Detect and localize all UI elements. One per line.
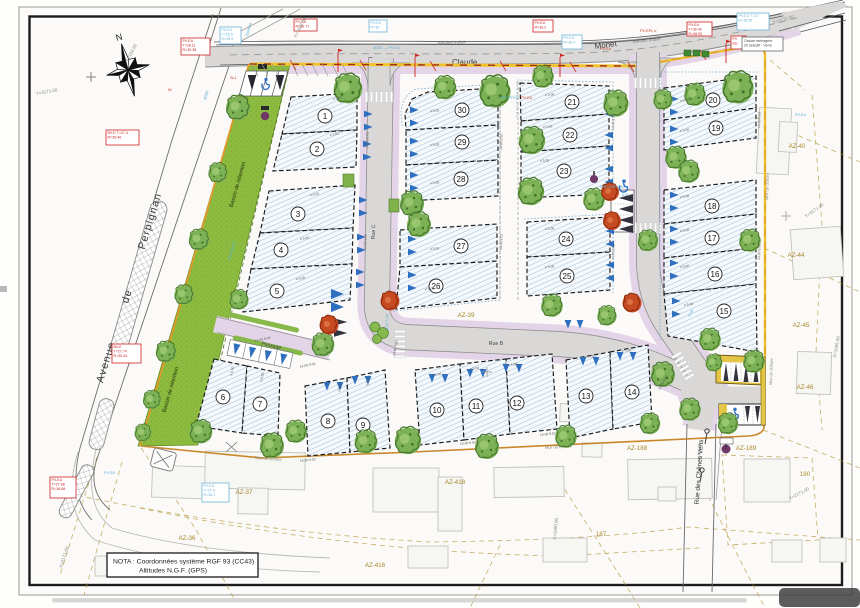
svg-text:T=26.5: T=26.5: [222, 33, 233, 37]
svg-text:14.00 9.02: 14.00 9.02: [757, 112, 762, 128]
svg-text:AZ-416: AZ-416: [365, 562, 386, 569]
svg-text:PV-EU: PV-EU: [104, 471, 116, 475]
svg-text:15: 15: [720, 307, 729, 316]
svg-text:20 sélectif - Verre: 20 sélectif - Verre: [744, 43, 772, 47]
svg-text:190: 190: [800, 471, 811, 478]
svg-text:PV-EU: PV-EU: [564, 36, 575, 40]
svg-text:187: 187: [596, 531, 607, 538]
svg-text:14: 14: [628, 388, 637, 397]
svg-text:R=36.1: R=36.1: [204, 493, 216, 497]
svg-text:R=36: R=36: [371, 26, 380, 30]
svg-text:EU: EU: [733, 42, 738, 46]
svg-text:14.00 9.02: 14.00 9.02: [499, 134, 504, 150]
svg-text:R=35.38: R=35.38: [183, 48, 197, 52]
svg-text:AZ-44: AZ-44: [788, 252, 805, 259]
svg-text:T=27.9: T=27.9: [204, 489, 215, 493]
svg-text:≥ 5.00: ≥ 5.00: [545, 264, 555, 269]
svg-text:T=36.40: T=36.40: [689, 28, 702, 32]
svg-text:PV-EU: PV-EU: [204, 484, 215, 488]
svg-text:14.00 9.02: 14.00 9.02: [611, 114, 616, 130]
svg-text:NOTA : Coordonnées système RGF: NOTA : Coordonnées système RGF 93 (CC43): [113, 559, 254, 566]
svg-text:Ø200 — PV-EU: Ø200 — PV-EU: [373, 46, 400, 50]
svg-text:≥ 5.00: ≥ 5.00: [430, 142, 440, 147]
svg-text:19: 19: [712, 124, 721, 133]
svg-text:W: W: [168, 88, 172, 92]
svg-text:≥ 5.00: ≥ 5.00: [430, 180, 440, 185]
svg-text:T=26.11: T=26.11: [183, 44, 196, 48]
svg-text:PV-EU: PV-EU: [689, 23, 700, 27]
svg-text:6: 6: [221, 393, 226, 402]
svg-text:R=35.46: R=35.46: [108, 136, 122, 140]
svg-text:5: 5: [275, 287, 280, 296]
svg-text:R=36.4: R=36.4: [564, 41, 576, 45]
svg-text:PV-EU: PV-EU: [183, 39, 194, 43]
svg-text:12: 12: [513, 399, 522, 408]
svg-text:Mur de clôture: Mur de clôture: [768, 357, 774, 385]
svg-text:≥ 5.00: ≥ 5.00: [430, 246, 440, 251]
svg-text:AZ-45: AZ-45: [793, 322, 810, 329]
svg-text:AZ-40: AZ-40: [789, 143, 806, 150]
svg-text:PV-EU: PV-EU: [222, 28, 233, 32]
svg-text:Altitudes N.G.F. (GPS): Altitudes N.G.F. (GPS): [139, 568, 207, 575]
svg-text:PV-EU T=37: PV-EU T=37: [739, 14, 759, 18]
svg-text:PV-EPL o: PV-EPL o: [640, 29, 656, 33]
svg-text:T=27.74: T=27.74: [114, 350, 127, 354]
svg-text:6.00: 6.00: [622, 193, 629, 197]
svg-text:24: 24: [562, 235, 571, 244]
svg-text:Mur de clôture: Mur de clôture: [764, 172, 770, 200]
svg-text:AZ-46: AZ-46: [797, 384, 814, 391]
svg-text:T=27.88: T=27.88: [52, 483, 65, 487]
svg-text:16: 16: [711, 270, 720, 279]
svg-text:R=35.9: R=35.9: [222, 37, 234, 41]
svg-text:21: 21: [568, 98, 577, 107]
svg-text:≥ 5.00: ≥ 5.00: [540, 158, 550, 163]
svg-text:23: 23: [560, 167, 569, 176]
svg-text:Rue C: Rue C: [371, 224, 378, 239]
svg-text:≥ 5.00: ≥ 5.00: [545, 226, 555, 231]
svg-text:11: 11: [472, 402, 481, 411]
svg-text:R=36.88: R=36.88: [52, 487, 66, 491]
svg-text:18: 18: [708, 202, 717, 211]
svg-text:R=35.44: R=35.44: [114, 354, 128, 358]
svg-text:14.00 9.02: 14.00 9.02: [697, 444, 702, 460]
svg-text:5.00 5.00 3.00: 5.00 5.00 3.00: [600, 185, 624, 189]
svg-text:PV-EU: PV-EU: [795, 113, 807, 117]
svg-text:Ordure ménagère: Ordure ménagère: [744, 39, 772, 43]
svg-text:Bordure trottoir: Bordure trottoir: [438, 39, 467, 45]
svg-text:BV-E T=27.4: BV-E T=27.4: [108, 131, 128, 135]
svg-text:7: 7: [258, 400, 263, 409]
svg-text:2: 2: [315, 145, 320, 154]
svg-text:3.00 5.00: 3.00 5.00: [385, 314, 390, 330]
svg-text:AZ-39: AZ-39: [458, 312, 475, 319]
svg-text:9: 9: [361, 421, 366, 430]
svg-text:SL1: SL1: [230, 76, 237, 80]
svg-text:27: 27: [457, 242, 466, 251]
svg-text:29: 29: [458, 138, 467, 147]
svg-text:BV-E: BV-E: [114, 345, 123, 349]
svg-text:AZ-188: AZ-188: [627, 445, 648, 452]
svg-text:3: 3: [296, 210, 301, 219]
svg-text:10: 10: [433, 406, 442, 415]
svg-text:AZ-36: AZ-36: [179, 535, 196, 542]
svg-text:R=36.50: R=36.50: [689, 32, 703, 36]
svg-text:22: 22: [566, 131, 575, 140]
svg-text:AZ-189: AZ-189: [736, 445, 757, 452]
svg-text:≥ 5.00: ≥ 5.00: [545, 92, 555, 97]
svg-text:PV: PV: [733, 37, 738, 41]
svg-text:14.00 9.02: 14.00 9.02: [757, 244, 762, 260]
svg-text:PV-EU: PV-EU: [535, 21, 546, 25]
svg-text:13: 13: [582, 392, 591, 401]
svg-text:14.00 9.02: 14.00 9.02: [611, 244, 616, 260]
svg-text:PV-EU: PV-EU: [52, 478, 63, 482]
svg-text:20: 20: [709, 96, 718, 105]
svg-text:PV-EU: PV-EU: [600, 47, 612, 51]
svg-text:17: 17: [708, 234, 717, 243]
svg-text:1: 1: [323, 112, 328, 121]
svg-text:3.00 PV-EU: 3.00 PV-EU: [499, 95, 519, 100]
svg-text:14.00 9.02: 14.00 9.02: [365, 132, 370, 148]
svg-text:8: 8: [326, 417, 331, 426]
svg-text:≥ 5.00: ≥ 5.00: [430, 108, 440, 113]
svg-text:Rue B: Rue B: [489, 341, 504, 347]
svg-text:≥ 5.00: ≥ 5.00: [425, 286, 435, 291]
svg-text:AZ-418: AZ-418: [445, 479, 466, 486]
svg-text:25: 25: [563, 272, 572, 281]
svg-text:14.00 9.02: 14.00 9.02: [499, 234, 504, 250]
svg-text:R=36.55: R=36.55: [739, 19, 753, 23]
svg-text:≥ 5.00: ≥ 5.00: [543, 124, 553, 129]
svg-text:28: 28: [457, 175, 466, 184]
svg-text:R=36.2: R=36.2: [535, 26, 547, 30]
svg-text:PV-EU: PV-EU: [521, 96, 533, 100]
svg-text:AZ-37: AZ-37: [236, 489, 253, 496]
svg-text:30: 30: [458, 106, 467, 115]
svg-text:4: 4: [279, 246, 284, 255]
svg-text:14.00 9.02: 14.00 9.02: [363, 234, 368, 250]
svg-text:PV-EU: PV-EU: [371, 21, 382, 25]
